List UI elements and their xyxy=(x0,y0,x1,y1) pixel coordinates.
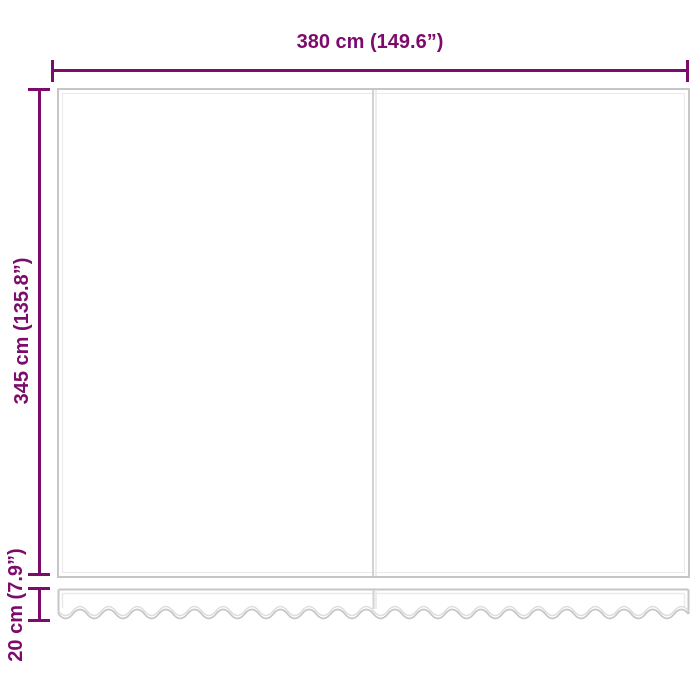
height-dimension-tick-bottom xyxy=(28,573,50,576)
width-dimension-tick-left xyxy=(51,60,54,82)
valance-dimension-tick-top xyxy=(28,587,50,590)
valance-dimension-label: 20 cm (7.9”) xyxy=(3,525,29,685)
center-seam-line xyxy=(372,90,374,576)
center-seam-line-highlight xyxy=(375,90,377,576)
valance-dimension-tick-bottom xyxy=(28,619,50,622)
height-dimension-line xyxy=(38,88,41,576)
width-dimension-tick-right xyxy=(686,60,689,82)
width-dimension-line xyxy=(51,69,689,72)
valance-strip xyxy=(57,588,690,632)
valance-dimension-line xyxy=(38,589,41,622)
width-dimension-label: 380 cm (149.6”) xyxy=(51,31,689,54)
height-dimension-label: 345 cm (135.8”) xyxy=(9,231,35,431)
height-dimension-tick-top xyxy=(28,88,50,91)
dimension-diagram: 380 cm (149.6”) 345 cm (135.8”) 20 cm (7… xyxy=(0,0,700,700)
